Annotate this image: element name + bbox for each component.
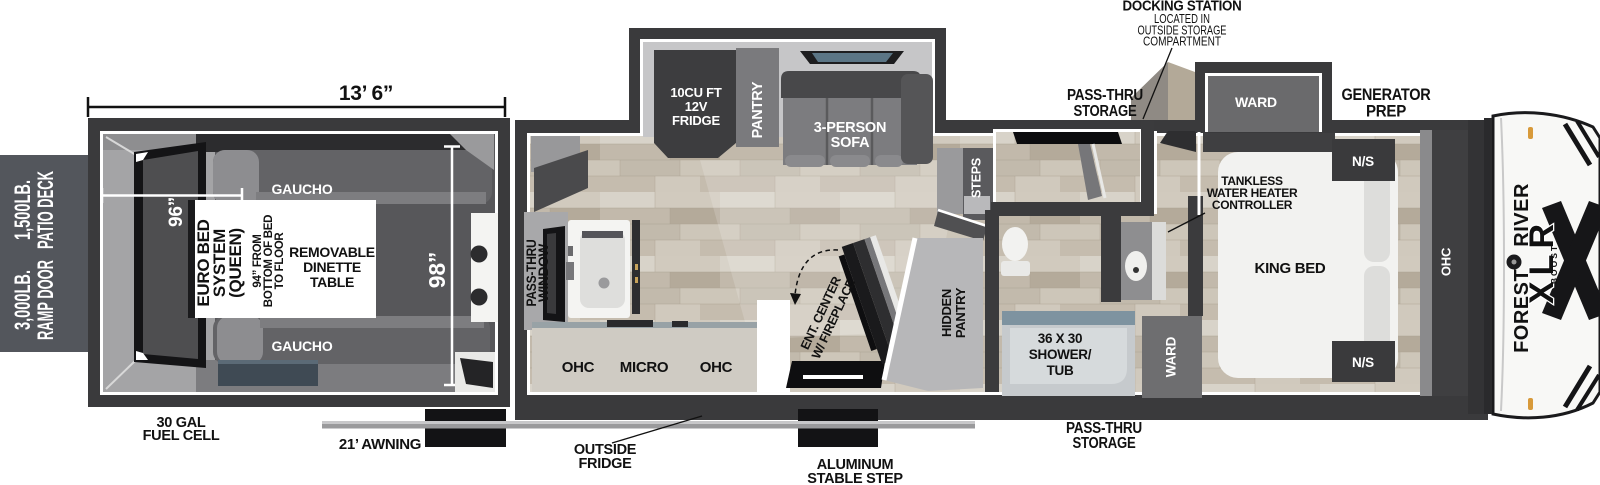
- svg-text:(QUEEN): (QUEEN): [226, 228, 245, 298]
- svg-text:STABLE STEP: STABLE STEP: [807, 471, 903, 485]
- svg-text:STORAGE: STORAGE: [1073, 435, 1137, 452]
- svg-text:96”: 96”: [166, 197, 187, 227]
- svg-text:COMPARTMENT: COMPARTMENT: [1143, 35, 1221, 49]
- svg-text:DINETTE: DINETTE: [303, 259, 361, 275]
- svg-text:CONTROLLER: CONTROLLER: [1212, 198, 1293, 212]
- svg-text:FRIDGE: FRIDGE: [672, 113, 720, 128]
- svg-text:GENERATOR: GENERATOR: [1342, 86, 1431, 104]
- svg-text:REMOVABLE: REMOVABLE: [289, 244, 375, 260]
- svg-text:SOFA: SOFA: [831, 135, 870, 151]
- svg-text:N/S: N/S: [1352, 355, 1374, 370]
- svg-text:PANTRY: PANTRY: [750, 81, 766, 138]
- svg-text:GAUCHO: GAUCHO: [271, 181, 332, 197]
- svg-text:FUEL CELL: FUEL CELL: [143, 428, 220, 444]
- svg-text:SHOWER/: SHOWER/: [1029, 347, 1092, 362]
- svg-text:TABLE: TABLE: [310, 274, 354, 290]
- svg-text:FRIDGE: FRIDGE: [579, 456, 633, 472]
- svg-text:OHC: OHC: [700, 359, 733, 376]
- svg-text:3,000LB.: 3,000LB.: [10, 270, 35, 330]
- svg-text:TO FLOOR: TO FLOOR: [274, 232, 286, 290]
- svg-text:PREP: PREP: [1366, 103, 1406, 121]
- svg-text:RAMP DOOR: RAMP DOOR: [33, 260, 58, 340]
- svg-text:MICRO: MICRO: [620, 359, 669, 376]
- svg-text:1,500LB.: 1,500LB.: [10, 180, 35, 240]
- svg-text:PASS-THRU: PASS-THRU: [1067, 87, 1143, 104]
- svg-text:13’ 6”: 13’ 6”: [339, 82, 393, 105]
- svg-text:OHC: OHC: [562, 359, 595, 376]
- svg-text:WINDOW: WINDOW: [535, 243, 551, 302]
- svg-text:GAUCHO: GAUCHO: [271, 338, 332, 354]
- svg-text:STORAGE: STORAGE: [1074, 103, 1138, 120]
- svg-text:21’ AWNING: 21’ AWNING: [339, 436, 421, 453]
- svg-text:WARD: WARD: [1164, 336, 1179, 377]
- svg-text:BOOST: BOOST: [1549, 244, 1559, 284]
- svg-text:3-PERSON: 3-PERSON: [814, 120, 887, 136]
- svg-text:OHC: OHC: [1438, 247, 1453, 276]
- svg-text:10CU FT: 10CU FT: [670, 85, 722, 100]
- svg-text:TUB: TUB: [1047, 363, 1074, 378]
- svg-text:HIDDEN: HIDDEN: [939, 289, 954, 337]
- svg-text:98”: 98”: [424, 252, 450, 288]
- svg-text:36 X 30: 36 X 30: [1038, 331, 1082, 346]
- svg-text:PATIO DECK: PATIO DECK: [33, 171, 58, 249]
- svg-text:STEPS: STEPS: [969, 158, 983, 198]
- svg-text:KING BED: KING BED: [1255, 260, 1326, 277]
- svg-text:N/S: N/S: [1352, 154, 1374, 169]
- svg-text:WARD: WARD: [1235, 94, 1277, 110]
- svg-text:12V: 12V: [685, 99, 708, 114]
- svg-text:PANTRY: PANTRY: [953, 287, 968, 338]
